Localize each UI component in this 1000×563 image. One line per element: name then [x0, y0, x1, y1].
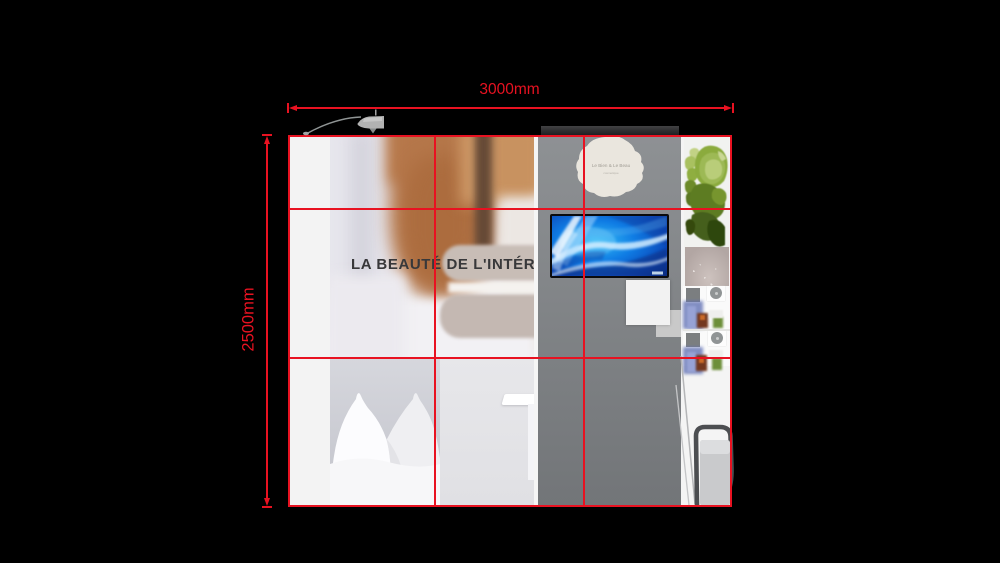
svg-text:Le Bien & Le Beau: Le Bien & Le Beau: [592, 163, 631, 168]
svg-text:cosmetique: cosmetique: [603, 171, 619, 175]
